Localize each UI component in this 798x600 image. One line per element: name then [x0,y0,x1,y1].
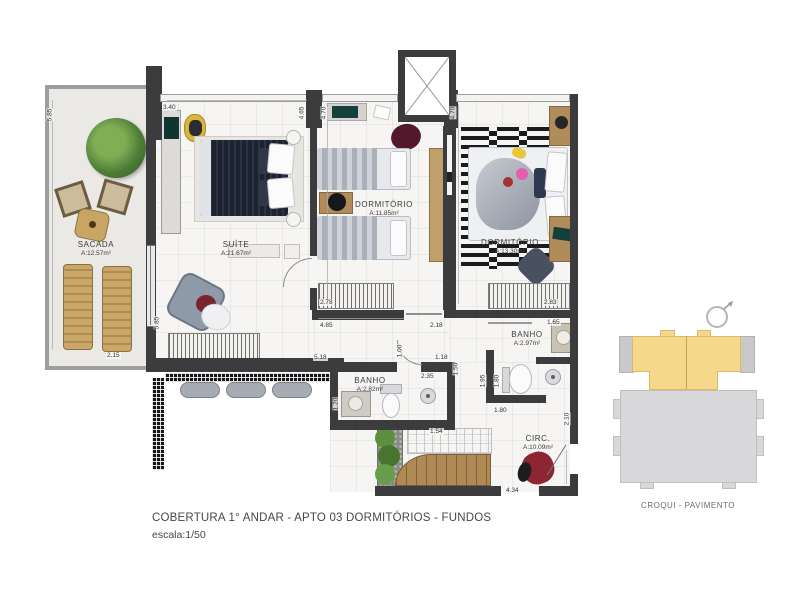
room-label-banho1: BANHOA:2.82m² [354,376,385,393]
shower-knob [426,394,430,398]
dim-label: 4.85 [319,322,334,329]
dim-label: 1.80 [494,375,501,388]
bed-pillow [544,151,567,193]
room-label-dorm2: DORMITÓRIOA:13.30m² [481,238,539,255]
pergola-strip-vertical [152,378,164,470]
wall-circ-bottom [539,486,578,496]
dim-label: 4.65 [299,107,306,120]
lower-floor-seat [272,382,312,398]
croqui-building-bump [756,399,764,419]
dim-label: 1.54 [429,428,444,435]
dim-label: 1.50 [453,363,460,376]
sun-lounger [63,264,93,350]
croqui-building-tab [640,482,654,489]
croqui-gray-wing [740,336,755,373]
dim-line [566,450,567,484]
door-handle [447,172,452,182]
wall-dorm2-top [456,94,570,102]
dim-line [458,104,459,304]
wall-dorm2-bottom [444,310,578,318]
dim-label: 1.65 [546,319,561,326]
stair-railing [407,428,492,454]
croqui-unit-divider [686,336,687,389]
round-rug [328,193,346,211]
wall-cavity [447,135,452,195]
tv-unit [164,117,179,139]
round-side-table [286,212,301,227]
duvet [476,158,540,230]
sun-lounger [102,266,132,352]
sliding-glass-door [147,245,155,327]
dorm2-closet [488,283,570,309]
croqui-building-bump [613,436,621,456]
clothes-red [503,177,513,187]
croqui-building-bump [756,436,764,456]
wall-topleft-block [146,66,162,140]
room-label-sacada: SACADAA:12.57m² [78,240,115,257]
dim-line [327,104,328,304]
bed-pillow [267,177,296,209]
glass-line [150,245,151,325]
dim-label: 1.80 [493,407,508,414]
dim-label: 1.95 [480,375,487,388]
plan-title: COBERTURA 1° ANDAR - APTO 03 DORMITÓRIOS… [152,512,491,524]
dim-label: 4.70 [450,107,457,120]
toilet-bowl [382,393,400,418]
round-side-table [286,130,301,145]
toilet-bowl [509,364,532,394]
laptop [552,227,571,241]
decor-bowl [555,116,568,129]
lower-floor-seat [180,382,220,398]
bed-fold [200,140,211,216]
dim-label: 4.70 [321,107,328,120]
dim-label: 2.35 [420,373,435,380]
staircase [395,454,491,486]
dim-label: 2.18 [429,322,444,329]
dim-label: 2.83 [543,299,558,306]
wall-dorm1-top [322,94,398,102]
room-label-dorm1: DORMITÓRIOA:11.85m² [355,200,413,217]
dim-line [318,318,404,319]
room-label-circ: CIRC.A:10.09m² [523,434,553,451]
plan-scale: escala:1/50 [152,529,206,541]
clothes-pink [516,168,528,180]
dim-label: 2.10 [564,413,571,426]
croqui-highlight-lower [649,371,718,390]
elevator-x-icon [405,57,449,115]
dim-line [52,100,53,350]
north-arrow-icon [702,298,738,332]
small-table [284,244,300,259]
armchair-seat [189,120,202,136]
dim-label: 1.20 [333,398,340,411]
croqui-building-bump [613,399,621,419]
bed-pillow [390,220,407,256]
pergola-strip-horizontal [165,373,337,382]
entry-door-gap [570,444,578,474]
table-decor [89,221,96,228]
sink-bowl [556,330,571,345]
dorm1-wardrobe [429,148,444,262]
sink-bowl [348,396,363,411]
floor-plan-canvas: 5.85 2.15 3.40 4.65 4.70 4.70 2.78 4.85 … [0,0,798,600]
wall-banho2-bottom [486,395,546,403]
wall-banho1-top [333,362,397,372]
dim-label: 5.85 [154,317,161,330]
bed-pillow [267,143,296,175]
sliding-door-line [488,322,532,324]
croqui-label: CROQUI - PAVIMENTO [641,501,735,510]
bed-blanket [317,216,377,260]
dim-label: 5.85 [47,109,54,122]
dim-label: 1.00 [397,345,404,358]
dim-label: 2.15 [106,352,121,359]
dim-label: 3.40 [162,104,177,111]
shower-knob [551,375,555,379]
bed-pillow [390,151,407,187]
lower-floor-seat [226,382,266,398]
dim-label: 1.18 [434,354,449,361]
room-label-suite: SUÍTEA:21.67m² [221,240,251,257]
dim-label: 4.34 [505,487,520,494]
elevator-shaft [398,50,456,122]
croqui-building-body [620,390,757,483]
dim-label: 5.18 [313,354,328,361]
wall-right-outer [570,94,578,496]
potted-plant [86,118,146,178]
dim-label: 2.78 [319,299,334,306]
suite-closet [168,333,260,359]
croqui-building-tab [722,482,736,489]
plant [375,464,395,484]
sliding-door-line [406,313,442,315]
wall-circ-bottom [375,486,501,496]
bed-blanket [317,148,377,190]
room-label-banho2: BANHOA:2.97m² [511,330,542,347]
dim-line [167,100,307,101]
wall-shower-divider [536,357,578,364]
laptop [332,106,358,118]
